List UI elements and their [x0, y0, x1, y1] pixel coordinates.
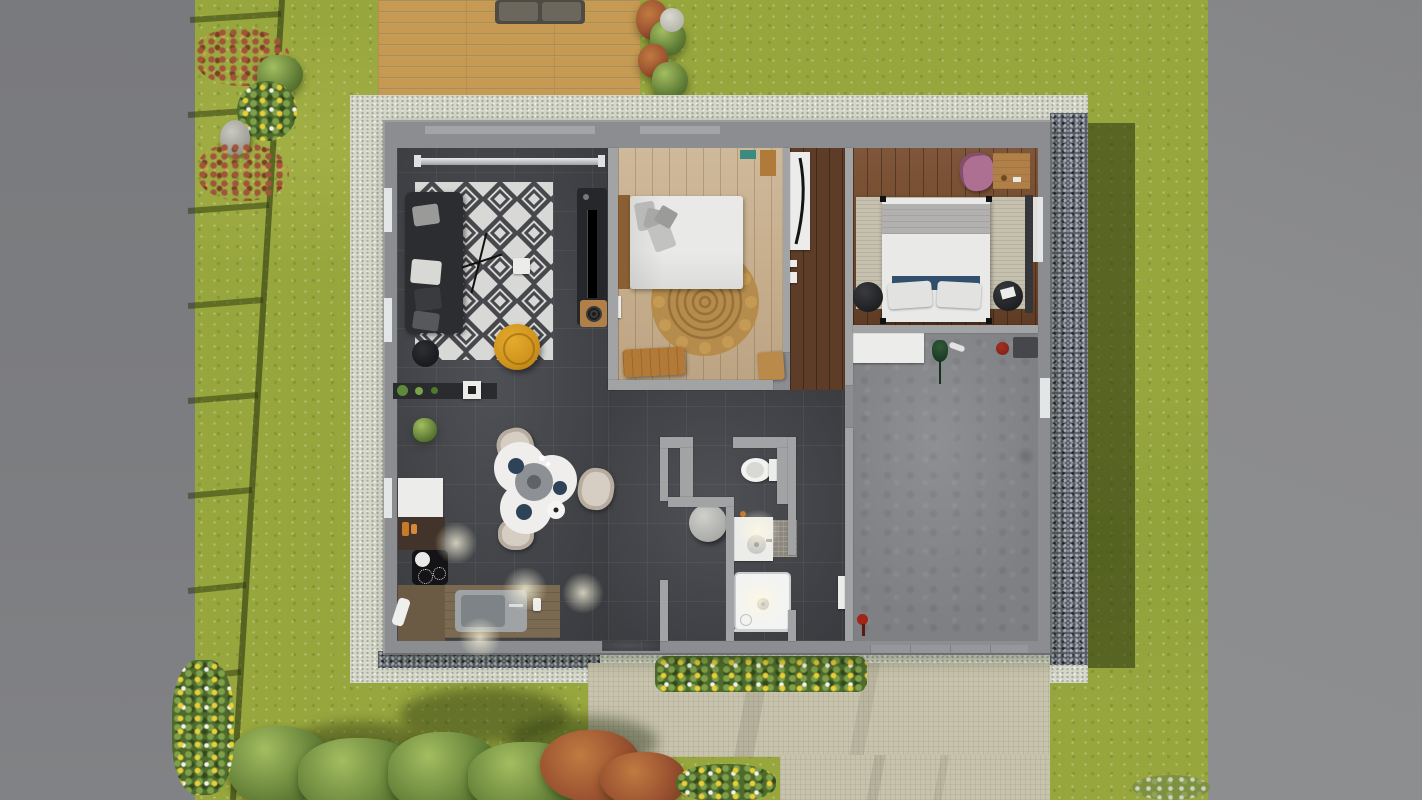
- deck-flower-border: [634, 0, 700, 104]
- window-right-bedroom2: [1033, 197, 1043, 262]
- desk-item: [1013, 177, 1021, 182]
- sofa-pillow: [412, 310, 440, 331]
- house: [383, 120, 1052, 655]
- bed-post: [880, 196, 886, 202]
- jar-orange: [402, 522, 409, 536]
- dining-table: [486, 442, 582, 536]
- bath-wall-shower: [726, 507, 734, 641]
- window-top-bedroom1: [640, 126, 720, 134]
- red-object: [996, 342, 1009, 355]
- cooking-pot: [415, 552, 430, 567]
- light-glow: [738, 580, 782, 622]
- plant: [415, 387, 423, 395]
- fridge: [398, 478, 443, 517]
- pillow: [887, 280, 933, 309]
- desk-item: [1001, 175, 1007, 181]
- house-shadow: [1088, 123, 1135, 668]
- pillow: [936, 281, 981, 309]
- bath-wall: [660, 437, 693, 448]
- flower-bed-left: [185, 25, 310, 205]
- bath-wall-right-lower: [788, 610, 796, 641]
- red-shrub: [197, 143, 289, 201]
- teal-accent: [740, 150, 756, 159]
- round-side-table: [412, 340, 439, 367]
- light-glow: [433, 523, 479, 563]
- plant-stem: [939, 360, 941, 384]
- burner: [433, 567, 446, 580]
- wall-bedroom2-garage: [853, 325, 1038, 333]
- garage-door: [870, 645, 1028, 653]
- garage-side-door: [1040, 378, 1050, 418]
- white-plants: [1132, 775, 1210, 800]
- wall-below-bedroom1: [608, 380, 773, 390]
- bath-wall: [660, 580, 668, 641]
- pouf-seam: [503, 333, 535, 365]
- wall-shelf: [760, 150, 776, 176]
- bed1-headboard: [617, 195, 630, 289]
- wall-living-bedroom1: [608, 148, 618, 390]
- window-top-living: [425, 126, 595, 134]
- sofa-pillow: [414, 287, 442, 312]
- wall-hall-garage-lower: [845, 428, 853, 641]
- bed2: [882, 198, 990, 322]
- sofa-cushion: [499, 2, 538, 21]
- jar-orange: [411, 524, 417, 534]
- bath-wall-mid: [668, 497, 734, 507]
- plant: [431, 387, 438, 394]
- light-glow: [458, 618, 502, 658]
- garage-mat: [1013, 337, 1038, 358]
- window-left: [384, 298, 392, 342]
- shower-glass: [734, 629, 791, 632]
- street-left: [0, 0, 195, 800]
- bath-wall-right-upper: [788, 437, 796, 555]
- wc-wall-left: [680, 448, 693, 504]
- plant: [397, 385, 408, 396]
- bed-post: [880, 318, 886, 324]
- gravel-strip-right: [1050, 113, 1088, 665]
- light-glow: [561, 573, 605, 613]
- wall-hall-garage-upper: [845, 148, 853, 385]
- garage-plant: [932, 340, 948, 362]
- toilet-bowl: [741, 458, 771, 482]
- sofa-pillow: [412, 203, 441, 226]
- window-left: [384, 478, 392, 518]
- wall-cabinet: [1025, 195, 1033, 313]
- wooden-bench: [622, 346, 685, 377]
- sofa-cushion: [542, 2, 581, 21]
- street-right: [1208, 0, 1422, 800]
- white-flowers: [660, 8, 684, 32]
- sofa: [405, 192, 463, 333]
- burner: [418, 569, 433, 584]
- coffee-table: [513, 258, 530, 274]
- toilet-seat: [746, 462, 764, 478]
- record-side-table: [580, 300, 607, 327]
- outdoor-sofa: [495, 0, 585, 24]
- desk: [993, 153, 1030, 189]
- nightstand-left: [853, 282, 883, 312]
- floor-stain: [1015, 447, 1037, 465]
- window-left: [384, 188, 392, 232]
- tv-screen: [588, 210, 597, 298]
- vinyl-record: [586, 306, 602, 322]
- bed2-blanket: [882, 204, 990, 234]
- front-flower-bed: [655, 656, 867, 692]
- yellow-flower-bush-left: [172, 660, 234, 795]
- floorplan-scene: [0, 0, 1422, 800]
- storage-cabinet: [853, 333, 924, 363]
- yellow-pouf: [494, 324, 540, 370]
- wall-bedroom1-hall: [783, 148, 790, 352]
- entry-door-recess: [602, 641, 660, 651]
- pillow: [647, 221, 677, 253]
- round-stool: [689, 504, 727, 542]
- decor-dot: [583, 194, 589, 200]
- bed-post: [986, 318, 992, 324]
- bedroom1-open-door: [757, 351, 785, 381]
- bed-post: [986, 196, 992, 202]
- valve-stem: [862, 624, 865, 636]
- curtain-bracket: [414, 155, 421, 167]
- curtain-rod: [417, 158, 602, 165]
- yellow-flower-bush: [676, 764, 776, 800]
- bed1: [630, 196, 743, 289]
- garage-floor: [853, 333, 1038, 641]
- sofa-pillow: [410, 259, 442, 286]
- light-glow: [735, 510, 781, 552]
- driveway: [780, 755, 1050, 800]
- coffee-machine: [463, 381, 481, 399]
- wc-wall-top: [733, 437, 791, 448]
- light-glow: [501, 568, 549, 610]
- orange-bush: [600, 752, 685, 800]
- machine-detail: [468, 386, 476, 394]
- plant-shelf: [393, 383, 497, 399]
- curtain-bracket: [598, 155, 605, 167]
